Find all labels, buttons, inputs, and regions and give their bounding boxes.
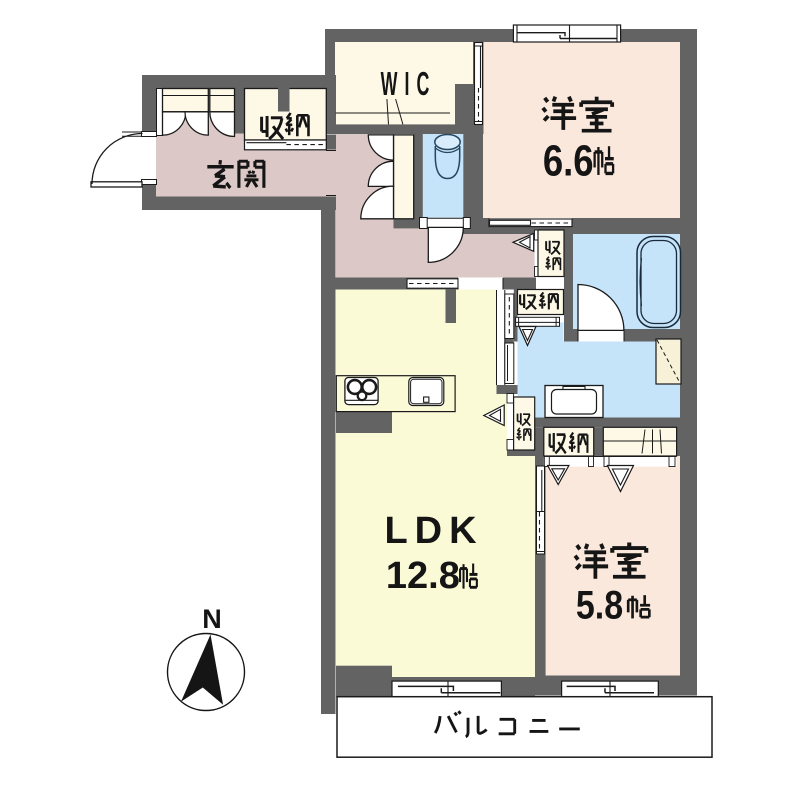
svg-text:LDK: LDK	[384, 510, 483, 552]
svg-text:5.8: 5.8	[576, 582, 623, 627]
svg-text:12.8: 12.8	[386, 555, 460, 597]
svg-text:WIC: WIC	[381, 65, 437, 102]
svg-text:N: N	[202, 604, 222, 634]
svg-text:6.6: 6.6	[543, 135, 594, 185]
